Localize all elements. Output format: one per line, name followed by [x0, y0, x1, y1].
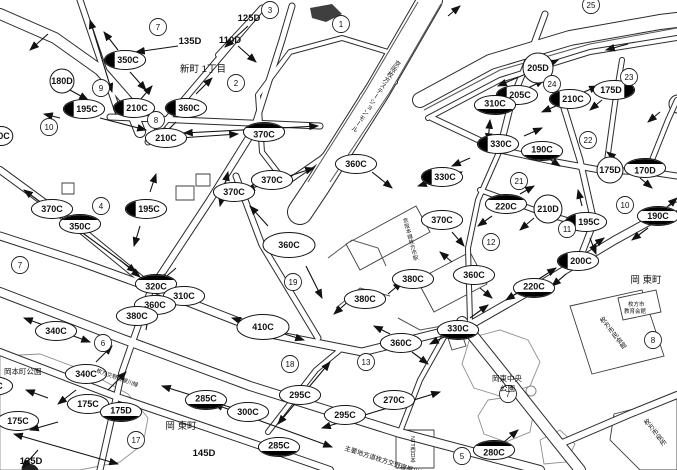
value-label: 370C: [253, 130, 275, 140]
block-number: 10: [41, 119, 58, 136]
value-marker: 350C: [59, 215, 100, 234]
value-label: 370C: [223, 187, 245, 197]
place-label: 岡東中央: [492, 373, 522, 383]
value-marker: 285C: [185, 391, 226, 410]
value-label: 340C: [45, 326, 67, 336]
value-label: 170D: [634, 166, 656, 176]
value-label: 360C: [463, 270, 485, 280]
value-label: 220C: [495, 202, 517, 212]
value-label: 195C: [138, 204, 160, 214]
value-label: 410C: [252, 322, 274, 332]
block-number-label: 13: [362, 358, 371, 367]
block-number-label: 8: [154, 116, 159, 125]
block-number-label: 18: [286, 360, 295, 369]
value-label: 195C: [578, 217, 600, 227]
value-marker: 125D: [238, 13, 261, 24]
block-number: 22: [580, 132, 597, 149]
value-marker: 270C: [373, 391, 414, 410]
block-number: 13: [358, 354, 375, 371]
value-label: 145D: [193, 448, 216, 459]
value-label: 190C: [531, 145, 553, 155]
place-label: 教育会館: [624, 307, 647, 315]
value-marker: 210C: [145, 129, 186, 148]
place-label: 枚方市: [628, 300, 645, 308]
value-label: 190C: [647, 211, 669, 221]
block-number: 24: [544, 76, 561, 93]
value-marker: 360C: [335, 155, 376, 174]
value-marker: 330C: [477, 135, 518, 154]
block-number-label: 10: [621, 201, 630, 210]
value-marker: 370C: [421, 211, 462, 230]
value-label: 110D: [219, 35, 241, 46]
value-label: 360C: [390, 338, 412, 348]
block-number: 4: [93, 198, 110, 215]
value-label: 195C: [76, 104, 98, 114]
place-label: 岡 東町: [630, 274, 662, 286]
value-label: 210D: [537, 204, 559, 214]
block-number-label: 7: [156, 23, 161, 32]
value-label: 175C: [77, 399, 99, 409]
building-outline: [176, 186, 194, 200]
value-marker: 410C: [237, 315, 289, 340]
value-marker: 360C: [380, 334, 421, 353]
value-label: 295C: [289, 390, 311, 400]
block-number: 6: [95, 335, 112, 352]
value-label: 380C: [126, 311, 148, 321]
value-label: 280C: [483, 448, 505, 458]
block-number-label: 7: [18, 261, 23, 270]
block-number-label: 12: [487, 238, 496, 247]
value-label: 175D: [600, 85, 622, 95]
value-label: 285C: [195, 394, 217, 404]
value-marker: 210C: [549, 90, 590, 109]
value-label: 210C: [126, 103, 148, 113]
block-number: 23: [621, 69, 638, 86]
value-label: 330C: [447, 324, 469, 334]
value-marker: 180D: [50, 69, 74, 93]
block-number-label: 4: [99, 202, 104, 211]
value-marker: 135D: [20, 456, 43, 467]
value-label: 295C: [334, 410, 356, 420]
value-marker: 190C: [521, 142, 562, 161]
block-number-label: 25: [587, 1, 596, 10]
value-marker: 175D: [100, 403, 141, 422]
block-number-label: 2: [234, 79, 239, 88]
value-label: 370C: [41, 204, 63, 214]
value-marker: 380C: [344, 290, 385, 309]
value-marker: 330C: [437, 321, 478, 340]
value-marker: 300C: [227, 403, 268, 422]
block-number-label: 23: [625, 73, 634, 82]
place-label: 岡本町公園: [4, 366, 42, 376]
value-label: 175D: [110, 406, 132, 416]
value-label: 180D: [51, 76, 73, 86]
value-marker: 360C: [263, 233, 315, 258]
value-marker: 200C: [557, 252, 598, 271]
value-label: 360C: [345, 159, 367, 169]
value-marker: 170D: [624, 159, 665, 178]
value-label: 220C: [523, 282, 545, 292]
value-marker: 210C: [113, 99, 154, 118]
block-number: 9: [93, 80, 110, 97]
value-marker: 380C: [392, 270, 433, 289]
value-marker: 370C: [31, 200, 72, 219]
value-label: 350C: [69, 222, 91, 232]
value-marker: 145D: [193, 448, 216, 459]
value-label: 200C: [570, 256, 592, 266]
value-marker: 210D: [534, 195, 562, 223]
value-marker: 310C: [474, 96, 515, 115]
value-marker: 370C: [243, 123, 284, 142]
value-marker: 135D: [179, 36, 202, 47]
block-number: 10: [617, 197, 634, 214]
value-marker: 380C: [116, 307, 157, 326]
value-marker: 360C: [453, 266, 494, 285]
value-label: 135D: [20, 456, 43, 467]
block-number: 1: [333, 16, 350, 33]
block-number-label: 19: [289, 278, 298, 287]
value-marker: 350C: [104, 51, 145, 70]
block-number-label: 8: [651, 336, 656, 345]
value-label: 125D: [238, 13, 261, 24]
block-number: 25: [583, 0, 600, 14]
building-outline: [196, 174, 210, 186]
value-label: 0C: [0, 131, 10, 141]
value-label: 175C: [7, 416, 29, 426]
value-label: 380C: [354, 294, 376, 304]
value-label: 310C: [484, 99, 506, 109]
value-label: 135D: [179, 36, 202, 47]
value-marker: 220C: [485, 195, 526, 214]
value-label: 205D: [527, 63, 549, 73]
value-marker: 370C: [251, 171, 292, 190]
block-number: 21: [511, 173, 528, 190]
block-number-label: 21: [515, 177, 524, 186]
block-number: 11: [559, 221, 576, 238]
block-number-label: 17: [132, 436, 141, 445]
value-marker: 195C: [125, 200, 166, 219]
block-number-label: 11: [563, 225, 572, 234]
block-number: 2: [228, 75, 245, 92]
block-number: 3: [262, 2, 279, 19]
block-number: 19: [285, 274, 302, 291]
value-marker: 330C: [421, 168, 462, 187]
value-marker: 190C: [637, 207, 677, 226]
value-marker: 340C: [35, 322, 76, 341]
value-label: 370C: [261, 175, 283, 185]
place-label: 公園: [500, 384, 515, 393]
value-label: 210C: [562, 94, 584, 104]
rosenka-map-canvas: 135D125D110D350C180D195C210C360C210C0C37…: [0, 0, 677, 470]
block-number: 12: [483, 234, 500, 251]
value-label: 360C: [278, 240, 300, 250]
value-label: 285C: [268, 441, 290, 451]
value-marker: 110D: [219, 35, 241, 46]
value-marker: 370C: [213, 183, 254, 202]
block-number-label: 1: [339, 20, 344, 29]
place-label: NTT西日本: [409, 436, 416, 465]
block-number-label: 6: [101, 339, 106, 348]
block-number-label: 24: [548, 80, 557, 89]
value-marker: 295C: [324, 406, 365, 425]
value-marker: 175D: [597, 157, 623, 183]
value-label: 360C: [178, 103, 200, 113]
block-number: 5: [454, 448, 471, 465]
block-number: 17: [128, 432, 145, 449]
value-label: 310C: [173, 291, 195, 301]
block-number-label: 22: [584, 136, 593, 145]
block-number-label: 9: [99, 84, 104, 93]
block-number-label: 5: [460, 452, 465, 461]
value-marker: 220C: [513, 279, 554, 298]
block-number-label: 10: [45, 123, 54, 132]
building-outline: [62, 183, 74, 194]
value-label: 270C: [383, 395, 405, 405]
place-label: 新町 1丁目: [180, 63, 226, 75]
value-label: 340C: [75, 369, 97, 379]
block-number-label: 3: [268, 6, 273, 15]
value-marker: 175C: [0, 412, 39, 431]
value-marker: 285C: [258, 438, 299, 457]
block-number: 7: [12, 257, 29, 274]
block-number: 18: [282, 356, 299, 373]
value-label: 330C: [434, 172, 456, 182]
value-label: 175D: [599, 165, 621, 175]
map-viewport: 135D125D110D350C180D195C210C360C210C0C37…: [0, 0, 677, 470]
value-label: 350C: [117, 55, 139, 65]
value-label: 300C: [237, 407, 259, 417]
block-number: 8: [645, 332, 662, 349]
value-label: 370C: [431, 215, 453, 225]
place-label: 岡 東町: [165, 420, 197, 432]
value-label: 210C: [155, 133, 177, 143]
block-number: 8: [148, 112, 165, 129]
value-marker: 195C: [63, 100, 104, 119]
value-marker: 295C: [279, 386, 320, 405]
value-label: 205C: [509, 90, 531, 100]
value-label: 330C: [490, 139, 512, 149]
value-marker: 360C: [165, 99, 206, 118]
value-marker: 280C: [473, 441, 514, 460]
value-label: 320C: [145, 282, 167, 292]
block-number: 7: [150, 19, 167, 36]
value-label: 380C: [402, 274, 424, 284]
